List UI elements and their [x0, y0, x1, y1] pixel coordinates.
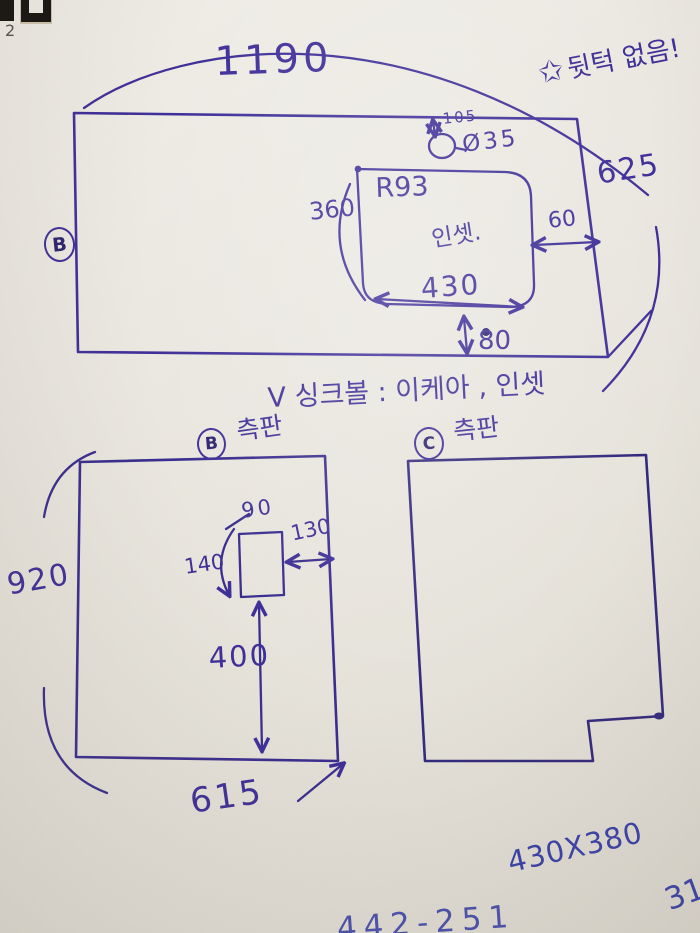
side-panel-b-outline: [76, 456, 338, 761]
dim-hole-offset-105: 105: [442, 108, 478, 127]
dim-line-80: [464, 318, 467, 352]
dim-gap-bottom-80: 80: [478, 328, 511, 354]
panel-letter-b: B: [51, 233, 68, 256]
bottom-right-leader-tick: [298, 764, 343, 801]
panel-b-side-label: 측판: [235, 413, 284, 444]
bottom-right-figure-drawing: [408, 455, 664, 761]
panel-letter-b-2: B: [204, 433, 219, 454]
panel-letter-c: C: [422, 433, 436, 454]
dim-cutout-width-430: 430: [420, 271, 481, 303]
star-icon: ✩: [535, 52, 566, 91]
right-leader-arc: [603, 227, 659, 391]
dim-slot-height-140: 140: [183, 551, 226, 577]
bottom-left-figure-drawing: [44, 452, 343, 801]
dim-slot-width-90: 90: [240, 496, 275, 521]
dim-line-400: [259, 604, 262, 750]
dim-slot-offset-400: 400: [208, 641, 271, 673]
ink-drawing-layer: [0, 0, 700, 933]
ink-blob: [654, 713, 664, 720]
dim-corner-radius-r93: R93: [375, 173, 429, 202]
side-panel-c-outline: [408, 455, 663, 761]
dim-line-130: [288, 559, 331, 562]
sketch-photo-page: 2: [0, 0, 700, 933]
slot-cutout-outline: [239, 532, 284, 597]
dim-width-1190: 1190: [214, 38, 333, 82]
countertop-outline: [74, 113, 608, 357]
dim-line-105: [433, 121, 435, 135]
faucet-hole-circle: [429, 134, 455, 158]
dim-cutout-height-360: 360: [308, 195, 356, 224]
panel-c-side-label: 측판: [452, 414, 500, 444]
dim-width-615: 615: [188, 775, 266, 819]
cutout-corner-dot: [356, 167, 360, 171]
dim-gap-right-60: 60: [547, 208, 577, 233]
dim-line-60: [534, 242, 597, 245]
